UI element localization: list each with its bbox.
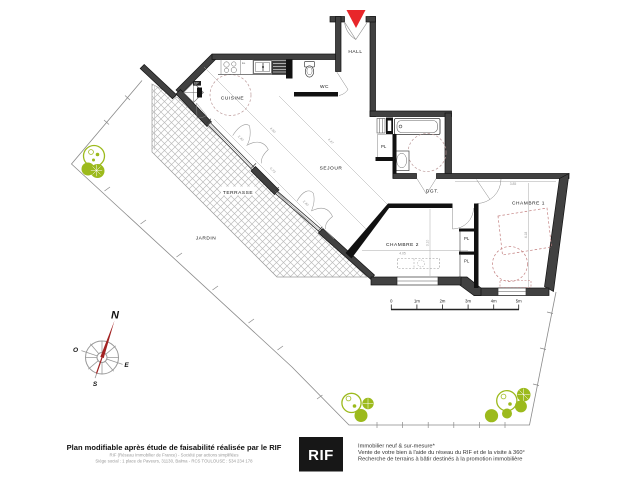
svg-text:3m: 3m bbox=[465, 299, 471, 304]
svg-text:1m: 1m bbox=[414, 299, 420, 304]
svg-text:O: O bbox=[73, 347, 78, 354]
svg-text:HALL: HALL bbox=[348, 49, 362, 55]
svg-text:Vente de votre bien à l'aide d: Vente de votre bien à l'aide du réseau d… bbox=[358, 450, 525, 456]
svg-text:S: S bbox=[93, 381, 98, 388]
svg-text:4m: 4m bbox=[491, 299, 497, 304]
svg-text:TERRASSE: TERRASSE bbox=[223, 190, 253, 196]
svg-text:2m: 2m bbox=[440, 299, 446, 304]
svg-text:PL: PL bbox=[464, 259, 470, 264]
svg-text:JARDIN: JARDIN bbox=[196, 236, 217, 242]
svg-text:Immobilier neuf & sur-mesure*: Immobilier neuf & sur-mesure* bbox=[358, 444, 436, 450]
svg-text:CUISINE: CUISINE bbox=[221, 96, 244, 102]
svg-text:Plan modifiable après étude de: Plan modifiable après étude de faisabili… bbox=[67, 443, 282, 452]
svg-text:LL: LL bbox=[242, 61, 246, 65]
svg-text:Recherche de terrains à bâtir: Recherche de terrains à bâtir destinés à… bbox=[358, 457, 522, 463]
svg-text:CHAMBRE 2: CHAMBRE 2 bbox=[386, 242, 419, 248]
svg-text:5m: 5m bbox=[516, 299, 522, 304]
svg-text:4.05: 4.05 bbox=[399, 252, 406, 256]
svg-text:3.85: 3.85 bbox=[510, 182, 517, 186]
svg-text:EP: EP bbox=[194, 82, 198, 86]
svg-text:SEJOUR: SEJOUR bbox=[320, 166, 343, 172]
svg-text:N: N bbox=[111, 310, 120, 322]
svg-text:E: E bbox=[124, 362, 129, 369]
svg-text:RIF: RIF bbox=[308, 447, 334, 464]
svg-text:PL: PL bbox=[464, 236, 470, 241]
svg-text:3.10: 3.10 bbox=[426, 240, 430, 247]
svg-text:Siège social : 1 place de Pave: Siège social : 1 place de Paveurs, 31130… bbox=[95, 459, 253, 464]
svg-text:WC: WC bbox=[320, 84, 329, 90]
svg-text:PL: PL bbox=[381, 144, 387, 149]
svg-text:RIF (Réseau Immobilier de Fran: RIF (Réseau Immobilier de France) - Soci… bbox=[110, 453, 239, 458]
svg-text:4.18: 4.18 bbox=[524, 232, 528, 239]
